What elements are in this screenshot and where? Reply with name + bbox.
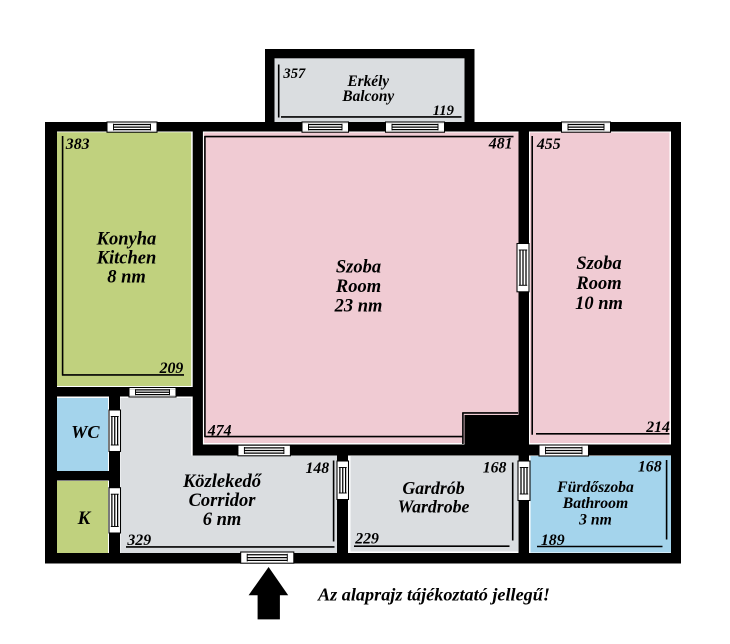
svg-text:474: 474: [207, 423, 232, 440]
svg-text:Bathroom: Bathroom: [562, 495, 628, 512]
svg-text:Wardrobe: Wardrobe: [398, 497, 470, 517]
svg-text:Room: Room: [575, 274, 621, 294]
svg-text:3 nm: 3 nm: [578, 512, 612, 529]
svg-text:Balcony: Balcony: [341, 88, 394, 105]
svg-text:Fürdőszoba: Fürdőszoba: [556, 479, 634, 496]
svg-text:Közlekedő: Közlekedő: [182, 472, 263, 492]
svg-text:23 nm: 23 nm: [334, 297, 383, 317]
svg-text:189: 189: [541, 532, 565, 549]
svg-text:Szoba: Szoba: [336, 258, 381, 278]
svg-text:Szoba: Szoba: [576, 254, 621, 274]
svg-text:Konyha: Konyha: [96, 229, 157, 249]
svg-text:229: 229: [354, 531, 379, 548]
svg-text:455: 455: [536, 136, 561, 153]
svg-text:8 nm: 8 nm: [107, 267, 146, 287]
svg-text:209: 209: [159, 360, 184, 377]
svg-text:329: 329: [126, 532, 151, 549]
svg-text:Kitchen: Kitchen: [96, 248, 157, 268]
svg-text:10 nm: 10 nm: [575, 294, 623, 314]
svg-text:168: 168: [483, 459, 507, 476]
svg-text:Gardrób: Gardrób: [402, 478, 464, 498]
svg-text:Room: Room: [335, 277, 381, 297]
svg-text:383: 383: [65, 136, 90, 153]
svg-text:Corridor: Corridor: [189, 491, 257, 511]
svg-text:WC: WC: [71, 422, 100, 442]
svg-text:119: 119: [433, 103, 455, 119]
svg-text:148: 148: [305, 460, 329, 477]
svg-text:168: 168: [638, 459, 662, 476]
svg-text:481: 481: [488, 136, 513, 153]
svg-text:Az alaprajz tájékoztató jelleg: Az alaprajz tájékoztató jellegű!: [317, 585, 550, 605]
svg-text:214: 214: [645, 419, 670, 436]
svg-text:357: 357: [282, 66, 306, 82]
svg-text:6 nm: 6 nm: [203, 510, 242, 530]
svg-text:K: K: [77, 508, 92, 529]
